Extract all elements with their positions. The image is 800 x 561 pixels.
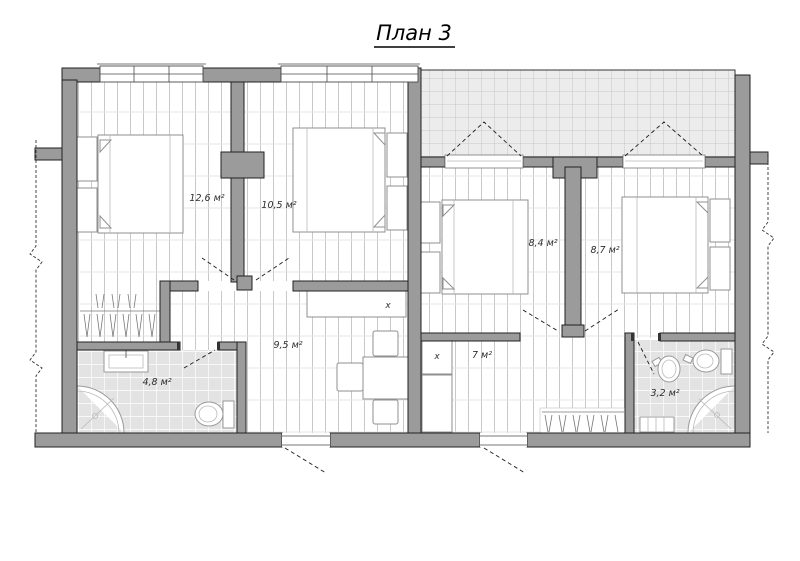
room-area-label: 9,5 м² (273, 340, 302, 351)
entry-threshold (282, 433, 330, 447)
wall-cap (562, 325, 584, 337)
bottom-wall (330, 433, 480, 447)
bathroom-left-wall (218, 342, 237, 350)
hall-wall (421, 333, 520, 341)
door-jamb (658, 333, 661, 341)
nightstand-icon (387, 186, 407, 230)
bathroom-right-wall (660, 333, 735, 341)
terrace-wall (705, 157, 735, 167)
left-wall (62, 80, 77, 447)
shaft-mark: x (384, 301, 391, 311)
entry-threshold (480, 433, 527, 447)
cabinet-icon (422, 375, 452, 432)
left-wall-stub (35, 148, 62, 160)
floor-plan-canvas: План 3 (0, 0, 800, 561)
right-wall-stub (750, 152, 768, 164)
terrace (421, 70, 735, 157)
door-jamb (631, 333, 634, 341)
room-area-label: 10,5 м² (261, 200, 296, 211)
nightstand-icon (710, 199, 730, 242)
closet-left-floor (77, 281, 160, 342)
break-line-icon (762, 152, 774, 433)
radiator-icon (640, 417, 674, 432)
shaft-mark: x (433, 352, 440, 362)
break-line-icon (30, 140, 42, 433)
cabinet-icon (307, 290, 406, 317)
toilet-icon (693, 349, 732, 374)
room-area-label: 4,8 м² (142, 377, 171, 388)
window-icon (97, 64, 206, 82)
plan-title: План 3 (374, 21, 455, 47)
closet-wall (160, 281, 170, 345)
door-jamb (177, 342, 180, 350)
room-area-label: 8,7 м² (590, 245, 619, 256)
chair-icon (373, 400, 398, 424)
bedroom-divider-wall (565, 167, 581, 325)
bottom-wall (527, 433, 750, 447)
entry-door-swing-icon (484, 448, 525, 473)
wardrobe-rack-icon (540, 408, 626, 433)
wall-cap (237, 276, 252, 290)
bedroom-divider-wall (231, 82, 244, 282)
room-area-label: 12,6 м² (189, 193, 224, 204)
bathroom-left-wall (237, 342, 246, 433)
right-wall (735, 75, 750, 447)
entry-door-swing-icon (285, 448, 326, 473)
chair-icon (337, 363, 363, 391)
double-bed-icon (622, 197, 708, 293)
door-jamb (217, 342, 220, 350)
nightstand-icon (77, 137, 97, 181)
toilet-icon (195, 401, 234, 428)
window-icon (278, 64, 420, 82)
top-wall (203, 68, 281, 82)
nightstand-icon (421, 202, 440, 243)
bottom-wall (35, 433, 282, 447)
nightstand-icon (387, 133, 407, 177)
center-wall (408, 68, 421, 447)
wall-pier (221, 152, 264, 178)
page-title: План 3 (376, 21, 452, 45)
room-area-label: 7 м² (472, 350, 492, 361)
double-bed-icon (442, 200, 528, 294)
chair-icon (373, 331, 398, 356)
table-icon (363, 357, 408, 399)
nightstand-icon (710, 247, 730, 290)
bathroom-left-wall (77, 342, 180, 350)
floor-plan-page: План 3 (0, 0, 800, 561)
nightstand-icon (77, 188, 97, 232)
hall-wall (293, 281, 408, 291)
terrace-wall (421, 157, 445, 167)
room-area-label: 3,2 м² (650, 388, 679, 399)
bathroom-right-wall (625, 333, 634, 433)
nightstand-icon (421, 252, 440, 293)
room-area-label: 8,4 м² (528, 238, 557, 249)
terrace-floor (421, 70, 735, 157)
